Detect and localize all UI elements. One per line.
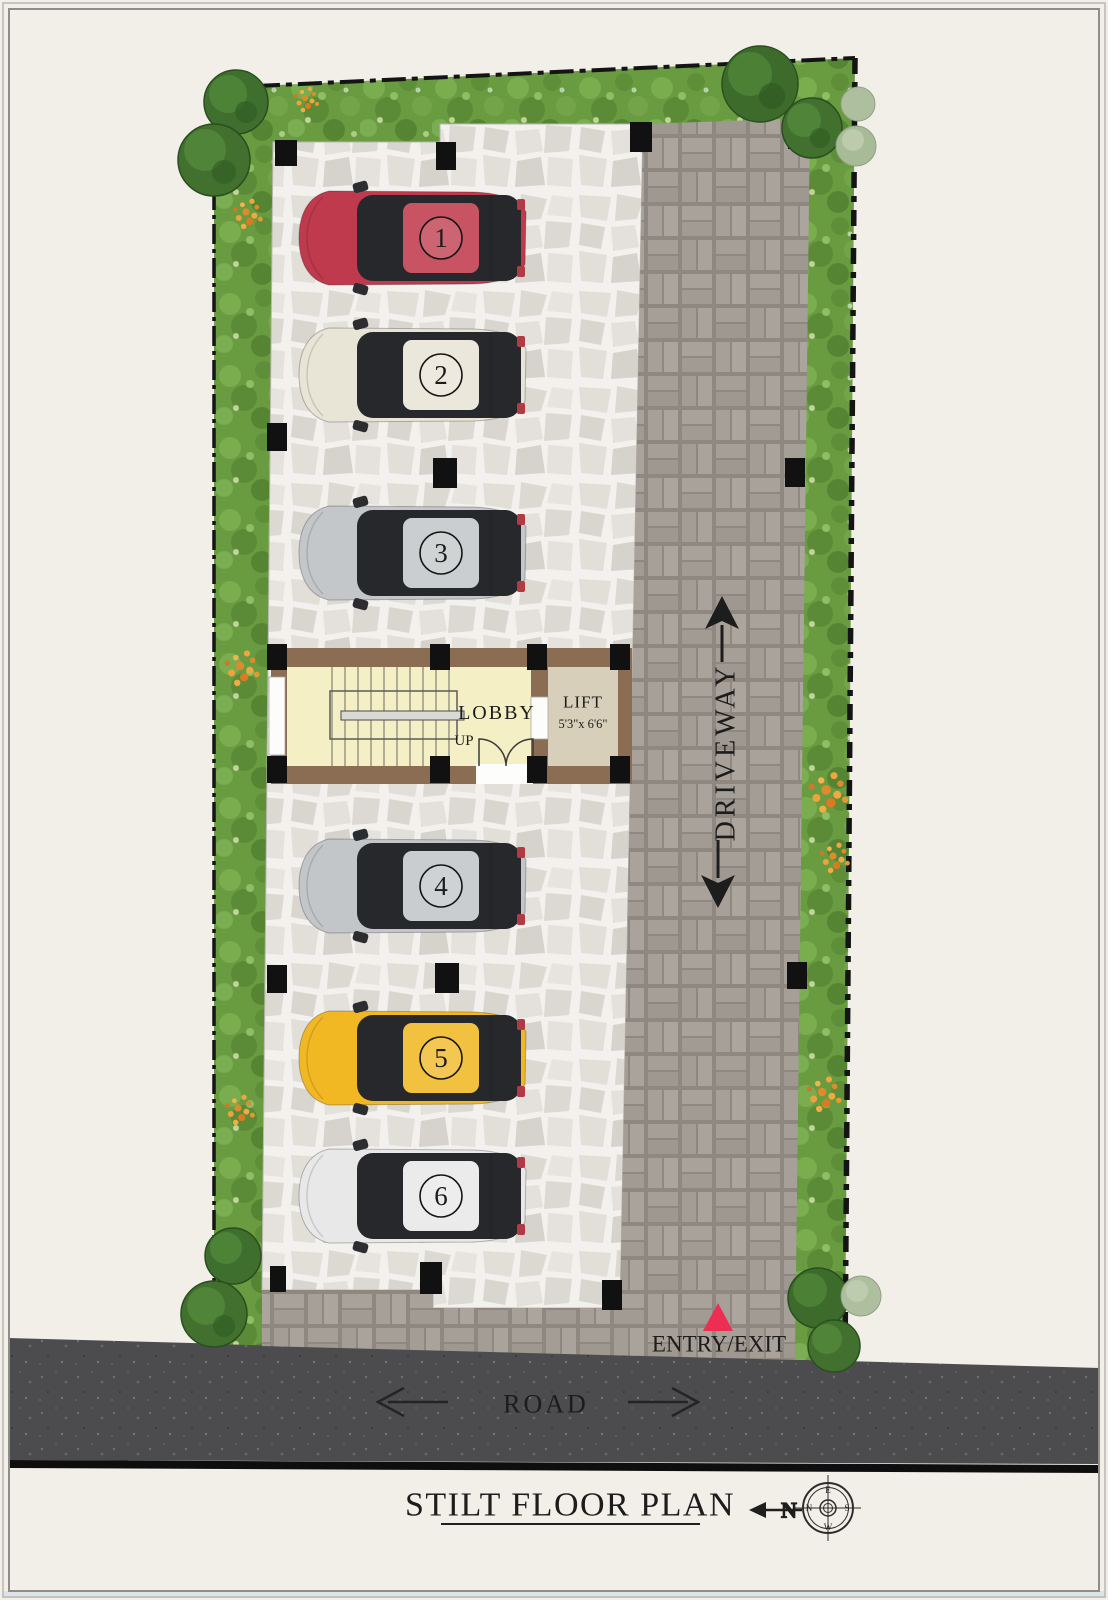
tree (205, 1228, 261, 1284)
tree (788, 1268, 848, 1328)
column (785, 458, 805, 487)
stair-handrail (341, 711, 464, 720)
lobby-door-opening (476, 764, 533, 784)
page-title: STILT FLOOR PLAN (405, 1487, 735, 1524)
spot-number: 6 (434, 1181, 448, 1211)
lobby-label: LOBBY (458, 702, 536, 724)
column (430, 644, 450, 670)
compass-bottom-label: W (824, 1522, 833, 1532)
column (602, 1280, 622, 1310)
road-label: ROAD (503, 1390, 589, 1419)
stairs-up-label: UP (454, 733, 473, 749)
column (275, 140, 297, 166)
lift-label: LIFT (563, 693, 603, 712)
column (527, 756, 547, 783)
column (270, 1266, 286, 1292)
tree (841, 1276, 881, 1316)
column (435, 963, 459, 993)
column (267, 423, 287, 451)
stilt-floor-plan-sheet: LOBBY UP LIFT 5'3"x 6'6" 1 (0, 0, 1108, 1600)
tree (782, 98, 842, 158)
column (267, 965, 287, 993)
spot-number: 2 (434, 360, 448, 390)
column (267, 756, 287, 783)
spot-number: 5 (434, 1043, 448, 1073)
spot-number: 4 (434, 871, 448, 901)
car-5: 5 (299, 1000, 526, 1116)
compass-right-label: S (844, 1503, 849, 1513)
plan-canvas: LOBBY UP LIFT 5'3"x 6'6" 1 (0, 0, 1108, 1600)
column (430, 756, 450, 783)
column (787, 962, 807, 989)
tree (178, 124, 250, 196)
car-2: 2 (299, 317, 526, 433)
tree (722, 46, 798, 122)
column (436, 142, 456, 170)
column (433, 458, 457, 488)
north-label: N (781, 1498, 797, 1523)
entry-exit-label: ENTRY/EXIT (652, 1332, 786, 1357)
tree (808, 1320, 860, 1372)
column (610, 644, 630, 670)
driveway-label: DRIVEWAY (711, 663, 742, 842)
car-1: 1 (299, 180, 526, 296)
car-6: 6 (299, 1138, 526, 1254)
compass-top-label: E (825, 1485, 831, 1495)
column (630, 122, 652, 152)
tree (181, 1281, 247, 1347)
car-3: 3 (299, 495, 526, 611)
column (420, 1262, 442, 1294)
spot-number: 1 (434, 223, 448, 253)
lobby-core: LOBBY UP LIFT 5'3"x 6'6" (269, 648, 632, 784)
column (527, 644, 547, 670)
column (610, 756, 630, 783)
title-block: STILT FLOOR PLAN (405, 1487, 735, 1525)
car-4: 4 (299, 828, 526, 944)
compass-left-label: N (806, 1503, 813, 1513)
lobby-window (269, 677, 285, 755)
lift-size-label: 5'3"x 6'6" (558, 717, 607, 731)
road-kerb-line (8, 1464, 1100, 1469)
spot-number: 3 (434, 538, 448, 568)
column (267, 644, 287, 670)
